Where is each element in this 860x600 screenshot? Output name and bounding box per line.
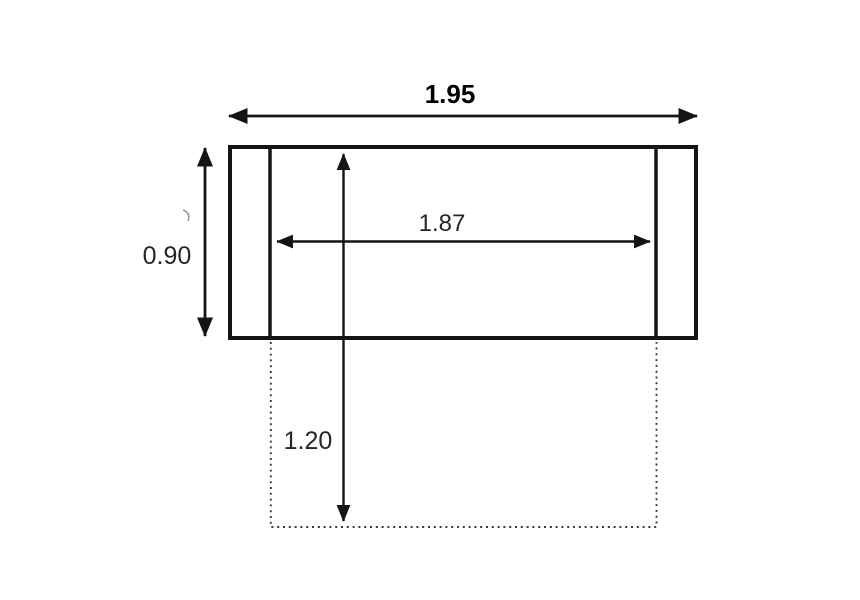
overall-width-dimension-label: 1.95 <box>425 79 476 109</box>
diagram-page: 1.95 0.90 1.87 1.20 <box>0 0 860 600</box>
diagram-canvas: 1.95 0.90 1.87 1.20 <box>0 0 860 600</box>
inner-width-dimension-label: 1.87 <box>419 210 466 237</box>
overall-height-dimension-label: 0.90 <box>143 242 192 270</box>
stray-scan-mark <box>183 210 189 221</box>
depth-dimension-label: 1.20 <box>284 427 333 455</box>
